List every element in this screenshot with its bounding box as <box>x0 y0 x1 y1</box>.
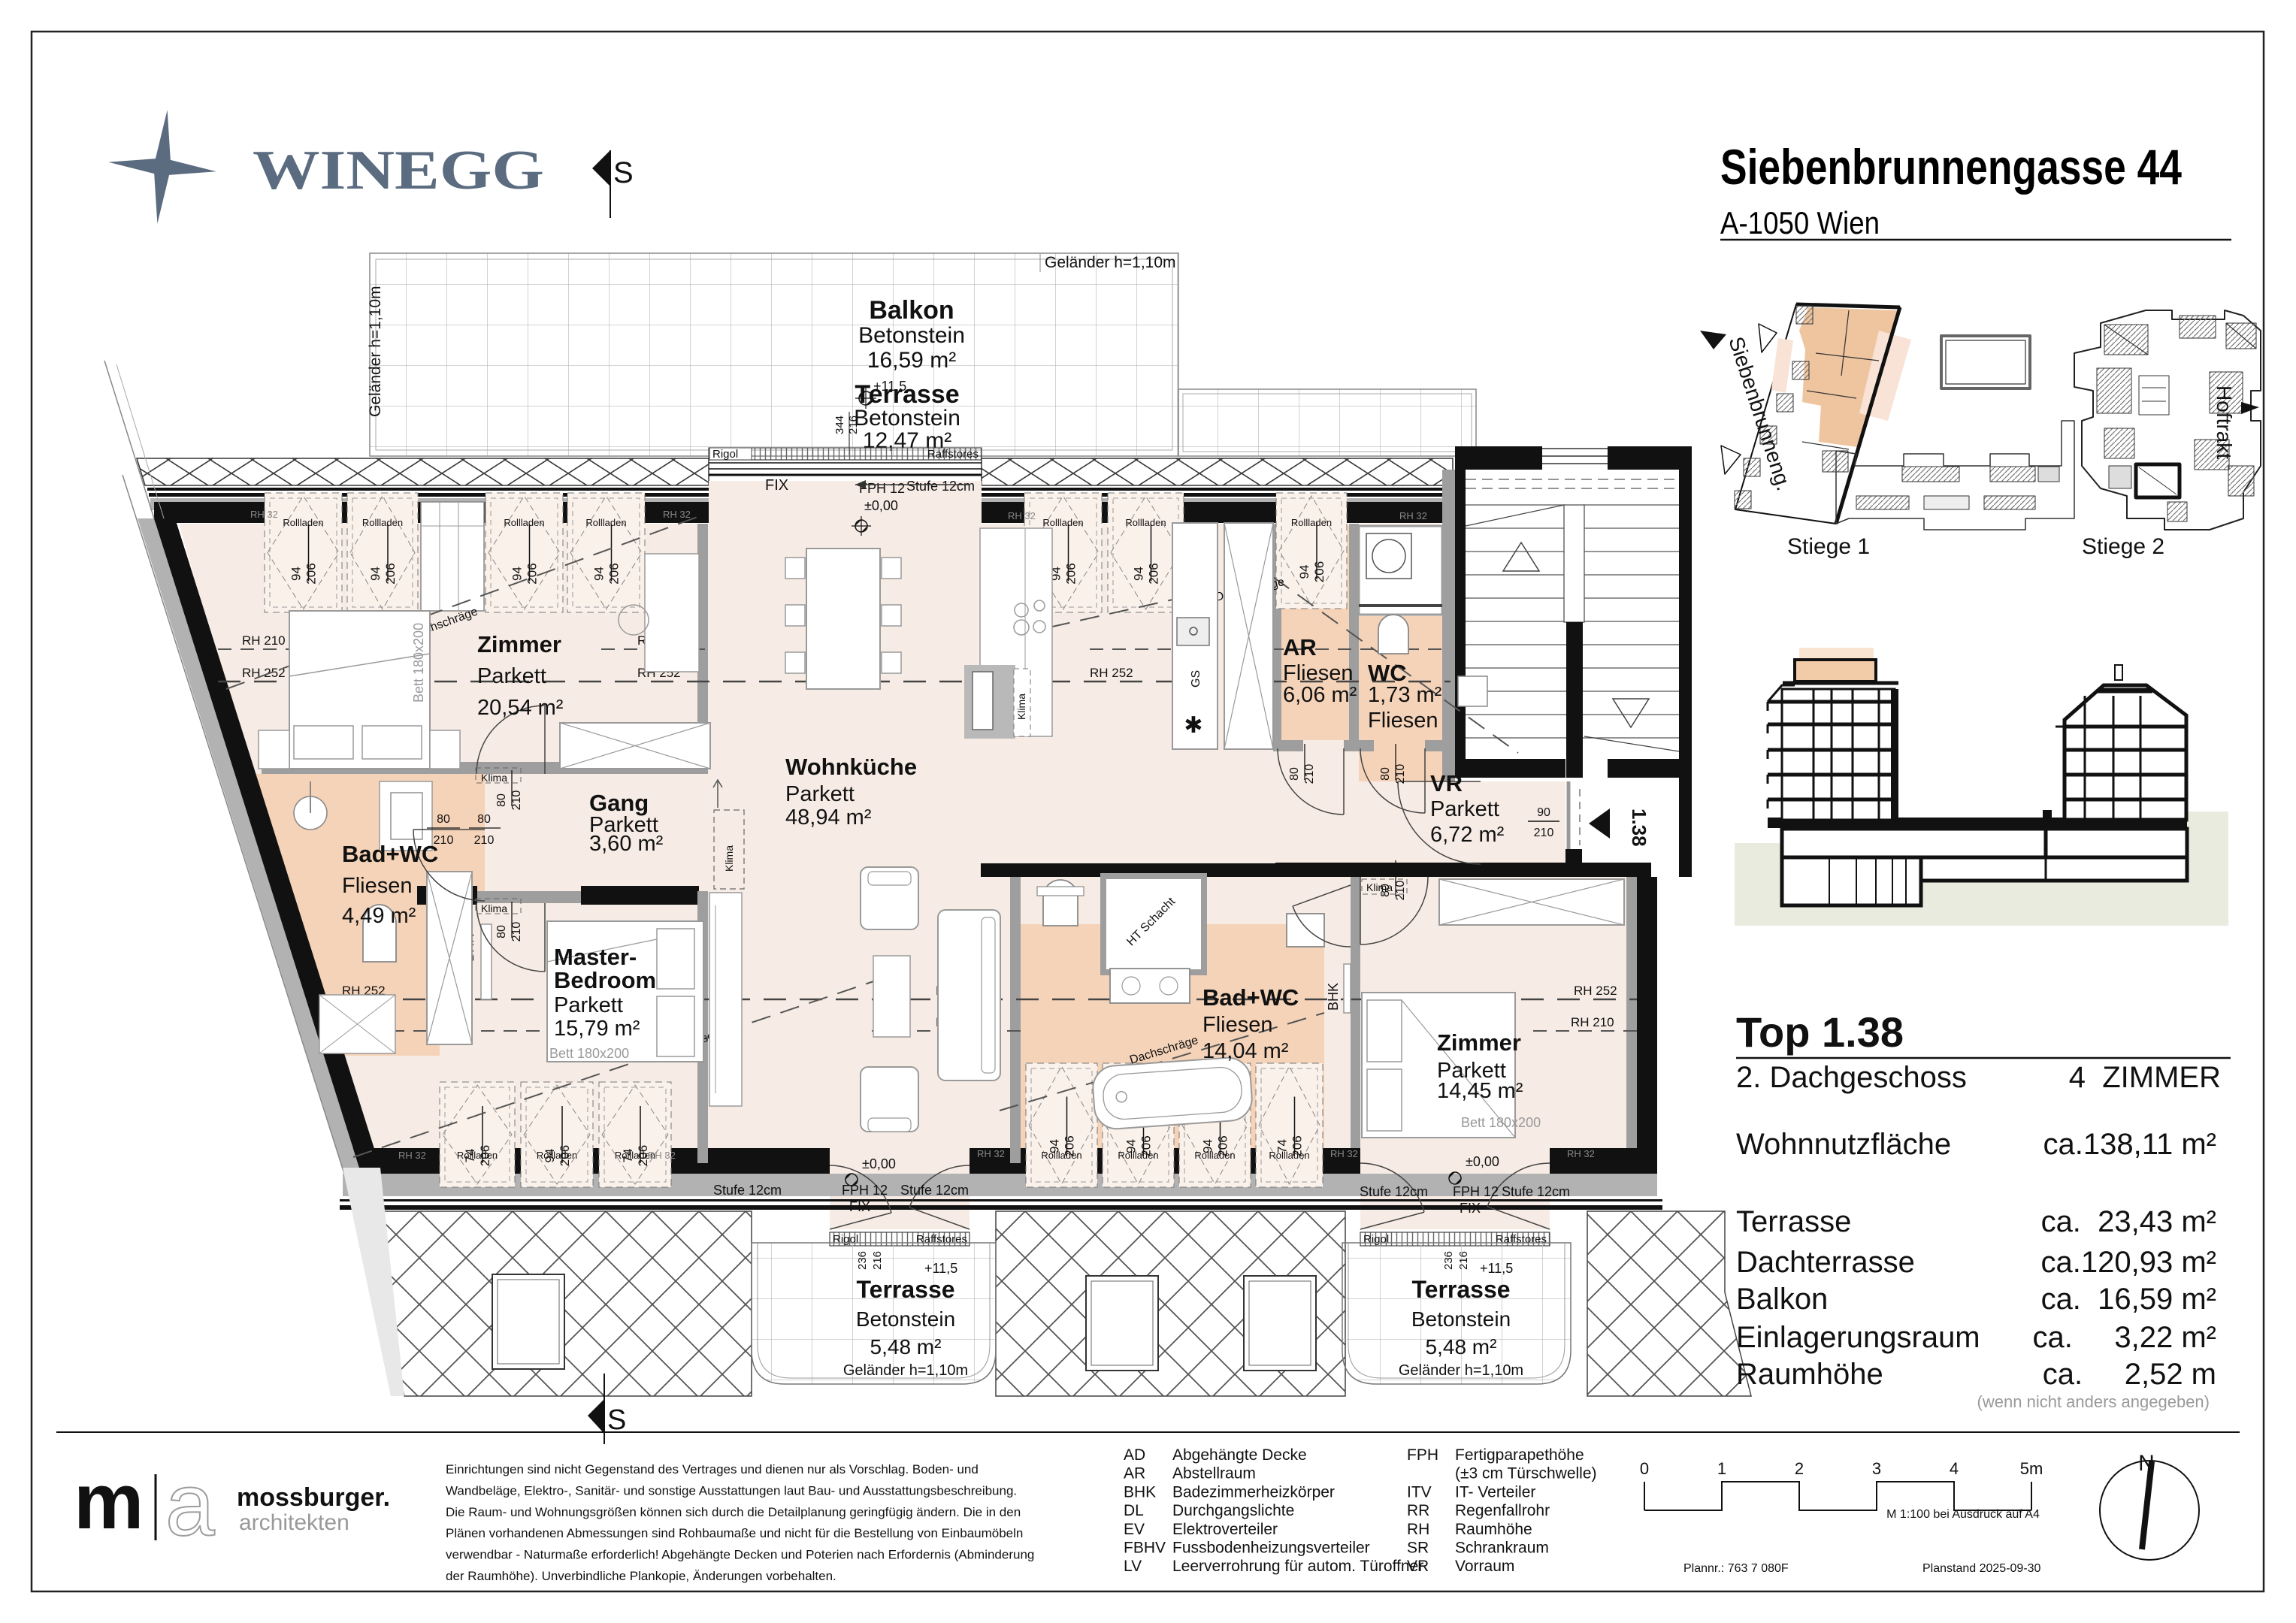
svg-text:Betonstein: Betonstein <box>854 406 960 431</box>
svg-text:Terrasse: Terrasse <box>1736 1205 1851 1238</box>
svg-text:6,72 m²: 6,72 m² <box>1430 823 1505 847</box>
svg-text:206: 206 <box>607 563 622 584</box>
svg-text:Terrasse: Terrasse <box>855 380 959 409</box>
svg-text:Geländer h=1,10m: Geländer h=1,10m <box>367 286 384 417</box>
svg-text:Stufe 12cm: Stufe 12cm <box>713 1183 782 1198</box>
svg-text:Geländer h=1,10m: Geländer h=1,10m <box>843 1362 968 1379</box>
svg-text:80: 80 <box>1379 767 1392 781</box>
svg-text:94: 94 <box>592 567 607 581</box>
svg-text:Raffstores: Raffstores <box>927 448 979 461</box>
svg-text:RH 252: RH 252 <box>1090 666 1133 680</box>
svg-text:SR: SR <box>1407 1540 1429 1557</box>
svg-text:1.38: 1.38 <box>1628 808 1650 847</box>
svg-text:RH: RH <box>1407 1521 1429 1538</box>
svg-text:m: m <box>74 1458 144 1546</box>
svg-text:Rollladen: Rollladen <box>1291 517 1332 528</box>
svg-text:Balkon: Balkon <box>1736 1283 1828 1316</box>
svg-text:✱: ✱ <box>1184 713 1202 738</box>
svg-text:Bett 180x200: Bett 180x200 <box>549 1046 629 1061</box>
svg-text:80: 80 <box>477 813 491 826</box>
svg-text:+11,5: +11,5 <box>1480 1261 1513 1276</box>
svg-text:Leerverrohrung für autom. Türo: Leerverrohrung für autom. Türoffner <box>1172 1558 1423 1575</box>
svg-text:Rollladen: Rollladen <box>283 517 323 528</box>
svg-text:90: 90 <box>1537 806 1550 819</box>
svg-text:ca.138,11 m²: ca.138,11 m² <box>2043 1128 2217 1161</box>
svg-text:Schrankraum: Schrankraum <box>1455 1540 1549 1557</box>
svg-text:2. Dachgeschoss: 2. Dachgeschoss <box>1736 1061 1967 1094</box>
svg-text:5,48 m²: 5,48 m² <box>870 1335 942 1359</box>
svg-text:RH 210: RH 210 <box>1571 1015 1614 1029</box>
svg-text:(±3 cm Türschwelle): (±3 cm Türschwelle) <box>1455 1465 1597 1482</box>
svg-text:Parkett: Parkett <box>554 993 623 1017</box>
svg-text:RH 252: RH 252 <box>1574 984 1617 998</box>
svg-text:Bedroom: Bedroom <box>554 967 656 993</box>
svg-text:3: 3 <box>1872 1459 1881 1478</box>
svg-text:94: 94 <box>368 567 383 581</box>
svg-text:5m: 5m <box>2020 1459 2043 1478</box>
svg-text:FIX: FIX <box>765 477 788 494</box>
svg-text:ca. 2,52 m: ca. 2,52 m <box>2043 1358 2216 1391</box>
svg-text:RH 32: RH 32 <box>977 1148 1005 1159</box>
svg-text:Fliesen: Fliesen <box>342 874 413 898</box>
svg-text:FPH 12: FPH 12 <box>1453 1184 1499 1199</box>
svg-text:ca. 3,22 m²: ca. 3,22 m² <box>2032 1321 2216 1354</box>
svg-text:GS: GS <box>1190 670 1202 688</box>
svg-text:Parkett: Parkett <box>477 664 546 688</box>
svg-text:206: 206 <box>304 563 319 584</box>
svg-text:Betonstein: Betonstein <box>856 1307 955 1331</box>
svg-text:Stufe 12cm: Stufe 12cm <box>1360 1184 1428 1199</box>
svg-text:verwendbar - Naturmaße erforde: verwendbar - Naturmaße erforderlich! Abg… <box>446 1548 1034 1562</box>
svg-text:FBHV: FBHV <box>1124 1540 1166 1557</box>
svg-text:FIX: FIX <box>849 1199 870 1214</box>
svg-text:0: 0 <box>1640 1459 1649 1478</box>
svg-text:5,48 m²: 5,48 m² <box>1426 1335 1497 1359</box>
svg-text:Geländer h=1,10m: Geländer h=1,10m <box>1045 254 1176 271</box>
svg-text:architekten: architekten <box>239 1510 349 1535</box>
svg-text:4 ZIMMER: 4 ZIMMER <box>2069 1061 2221 1094</box>
svg-text:206: 206 <box>1064 563 1078 584</box>
svg-text:206: 206 <box>525 563 540 584</box>
svg-text:VR: VR <box>1407 1558 1429 1575</box>
svg-text:RH 32: RH 32 <box>1567 1148 1595 1159</box>
svg-text:Rollladen: Rollladen <box>457 1150 498 1161</box>
svg-text:AR: AR <box>1283 634 1317 660</box>
svg-text:Einlagerungsraum: Einlagerungsraum <box>1736 1321 1980 1354</box>
svg-text:206: 206 <box>1147 563 1161 584</box>
svg-text:Terrasse: Terrasse <box>1411 1276 1510 1303</box>
svg-text:Fliesen: Fliesen <box>1368 709 1438 733</box>
svg-text:FPH 12: FPH 12 <box>842 1183 888 1198</box>
svg-text:236: 236 <box>1442 1251 1455 1270</box>
svg-text:94: 94 <box>289 567 304 581</box>
svg-text:ca.120,93 m²: ca.120,93 m² <box>2041 1246 2216 1279</box>
svg-text:Rollladen: Rollladen <box>1118 1150 1158 1161</box>
svg-text:Bett 180x200: Bett 180x200 <box>1461 1115 1541 1130</box>
svg-text:Stufe 12cm: Stufe 12cm <box>1502 1184 1570 1199</box>
svg-text:Terrasse: Terrasse <box>856 1276 954 1303</box>
svg-text:Rollladen: Rollladen <box>1194 1150 1235 1161</box>
svg-text:206: 206 <box>1312 561 1326 582</box>
svg-text:der Raumhöhe). Unverbindliche: der Raumhöhe). Unverbindliche Plankopie,… <box>446 1569 836 1583</box>
svg-text:Betonstein: Betonstein <box>858 323 965 348</box>
svg-text:14,04 m²: 14,04 m² <box>1202 1039 1289 1063</box>
svg-text:a: a <box>165 1455 215 1555</box>
svg-text:Fussbodenheizungsverteiler: Fussbodenheizungsverteiler <box>1172 1540 1370 1557</box>
svg-text:ITV: ITV <box>1407 1483 1432 1501</box>
svg-text:Bad+WC: Bad+WC <box>1202 984 1299 1011</box>
svg-text:210: 210 <box>474 834 495 847</box>
svg-text:RH 32: RH 32 <box>648 1150 676 1161</box>
svg-text:4,49 m²: 4,49 m² <box>342 904 416 928</box>
svg-text:15,79 m²: 15,79 m² <box>554 1017 640 1041</box>
svg-text:1: 1 <box>1717 1459 1726 1478</box>
svg-text:80: 80 <box>437 813 450 826</box>
svg-text:Gang: Gang <box>589 790 649 816</box>
svg-text:Abstellraum: Abstellraum <box>1172 1465 1256 1482</box>
svg-text:DL: DL <box>1124 1502 1144 1519</box>
svg-text:Elektroverteiler: Elektroverteiler <box>1172 1521 1278 1538</box>
svg-text:216: 216 <box>871 1251 884 1270</box>
svg-text:4: 4 <box>1950 1459 1959 1478</box>
svg-text:LV: LV <box>1124 1558 1142 1575</box>
svg-text:FPH: FPH <box>1407 1446 1438 1464</box>
svg-text:+11,5: +11,5 <box>924 1261 957 1276</box>
svg-text:Rollladen: Rollladen <box>362 517 403 528</box>
svg-text:210: 210 <box>1534 827 1554 839</box>
svg-text:M 1:100 bei Ausdruck auf A4: M 1:100 bei Ausdruck auf A4 <box>1886 1508 2040 1521</box>
svg-text:Fliesen: Fliesen <box>1283 661 1354 685</box>
svg-text:Fertigparapethöhe: Fertigparapethöhe <box>1455 1446 1584 1464</box>
svg-text:Parkett: Parkett <box>1430 797 1499 821</box>
svg-text:Rollladen: Rollladen <box>1125 517 1166 528</box>
svg-text:80: 80 <box>495 925 508 938</box>
svg-text:Abgehängte Decke: Abgehängte Decke <box>1172 1446 1307 1464</box>
svg-text:FPH 12: FPH 12 <box>859 481 905 496</box>
svg-text:RH 32: RH 32 <box>663 509 691 520</box>
svg-text:Klima: Klima <box>1366 881 1393 893</box>
svg-text:1,73 m²: 1,73 m² <box>1368 683 1442 707</box>
svg-text:ca. 16,59 m²: ca. 16,59 m² <box>2041 1283 2216 1316</box>
svg-text:Bad+WC: Bad+WC <box>342 841 438 867</box>
svg-text:Fliesen: Fliesen <box>1202 1013 1273 1037</box>
svg-text:Bett 180x200: Bett 180x200 <box>411 623 426 703</box>
svg-text:48,94 m²: 48,94 m² <box>785 805 872 830</box>
svg-text:Stiege 1: Stiege 1 <box>1787 534 1870 559</box>
svg-text:Stufe 12cm: Stufe 12cm <box>906 479 975 494</box>
svg-text:Rollladen: Rollladen <box>1269 1150 1309 1161</box>
svg-text:Rollladen: Rollladen <box>1041 1150 1081 1161</box>
svg-text:Klima: Klima <box>481 772 507 784</box>
svg-text:Stufe 12cm: Stufe 12cm <box>900 1183 969 1198</box>
svg-text:Wandbeläge, Elektro-, Sanitär-: Wandbeläge, Elektro-, Sanitär- und sonst… <box>446 1483 1017 1498</box>
svg-text:Planstand 2025-09-30: Planstand 2025-09-30 <box>1922 1562 2041 1575</box>
svg-text:IT- Verteiler: IT- Verteiler <box>1455 1483 1535 1501</box>
svg-text:Zimmer: Zimmer <box>1437 1029 1521 1056</box>
svg-text:WINEGG: WINEGG <box>253 140 544 201</box>
svg-text:(wenn nicht anders angegeben): (wenn nicht anders angegeben) <box>1977 1392 2210 1411</box>
svg-text:AR: AR <box>1124 1465 1145 1482</box>
svg-text:RH 32: RH 32 <box>250 509 278 520</box>
svg-text:80: 80 <box>1288 767 1301 781</box>
svg-text:RH 32: RH 32 <box>398 1150 426 1161</box>
svg-text:3,60 m²: 3,60 m² <box>589 832 664 856</box>
svg-text:Zimmer: Zimmer <box>477 631 561 657</box>
svg-text:Siebenbrunnengasse 44: Siebenbrunnengasse 44 <box>1720 139 2182 195</box>
svg-text:±0,00: ±0,00 <box>862 1156 896 1171</box>
svg-text:+11,5: +11,5 <box>873 379 906 394</box>
svg-text:Wohnküche: Wohnküche <box>785 754 917 780</box>
svg-text:Wohnnutzfläche: Wohnnutzfläche <box>1736 1128 1951 1161</box>
svg-text:Die Raum- und Wohnungsgrößen k: Die Raum- und Wohnungsgrößen können sich… <box>446 1505 1021 1519</box>
svg-text:Klima: Klima <box>481 902 507 914</box>
svg-text:Klima: Klima <box>1015 694 1027 720</box>
svg-text:AD: AD <box>1124 1446 1145 1464</box>
svg-text:Klima: Klima <box>723 845 735 872</box>
svg-text:Rigol: Rigol <box>712 448 738 461</box>
svg-text:Rollladen: Rollladen <box>1042 517 1083 528</box>
svg-text:14,45 m²: 14,45 m² <box>1437 1079 1523 1103</box>
svg-text:Dachterrasse: Dachterrasse <box>1736 1246 1915 1279</box>
svg-text:WC: WC <box>1368 660 1407 686</box>
svg-text:Top 1.38: Top 1.38 <box>1736 1008 1904 1056</box>
svg-text:80: 80 <box>495 793 508 807</box>
svg-text:Durchgangslichte: Durchgangslichte <box>1172 1502 1294 1519</box>
svg-text:Balkon: Balkon <box>869 296 954 325</box>
svg-text:RH 252: RH 252 <box>242 666 286 680</box>
svg-text:Badezimmerheizkörper: Badezimmerheizkörper <box>1172 1483 1335 1501</box>
svg-text:206: 206 <box>383 563 398 584</box>
svg-text:Plänen vorhandenen Abmessungen: Plänen vorhandenen Abmessungen sind Rohb… <box>446 1526 1023 1540</box>
svg-text:S: S <box>607 1404 626 1436</box>
svg-text:94: 94 <box>1132 567 1146 581</box>
svg-text:Parkett: Parkett <box>785 782 855 806</box>
svg-text:94: 94 <box>510 567 525 581</box>
svg-text:Stiege 2: Stiege 2 <box>2082 534 2164 559</box>
svg-text:VR: VR <box>1430 770 1463 796</box>
svg-text:S: S <box>613 156 634 189</box>
svg-text:RH 32: RH 32 <box>1008 510 1036 521</box>
svg-text:Rollladen: Rollladen <box>504 517 544 528</box>
svg-text:Einrichtungen sind nicht Gegen: Einrichtungen sind nicht Gegenstand des … <box>446 1462 979 1476</box>
svg-text:Master-: Master- <box>554 944 637 970</box>
svg-text:±0,00: ±0,00 <box>1466 1154 1499 1169</box>
svg-text:BHK: BHK <box>1124 1483 1156 1501</box>
svg-text:216: 216 <box>1457 1251 1470 1270</box>
svg-text:A-1050 Wien: A-1050 Wien <box>1720 205 1880 240</box>
svg-text:Rollladen: Rollladen <box>585 517 626 528</box>
svg-text:ca. 23,43 m²: ca. 23,43 m² <box>2041 1205 2216 1238</box>
svg-text:RH 32: RH 32 <box>1330 1148 1358 1159</box>
svg-text:±0,00: ±0,00 <box>864 498 898 513</box>
svg-text:Betonstein: Betonstein <box>1411 1307 1511 1331</box>
svg-text:Rollladen: Rollladen <box>537 1150 577 1161</box>
svg-text:RH 32: RH 32 <box>1399 510 1427 521</box>
svg-text:RH 210: RH 210 <box>242 633 286 648</box>
svg-text:Vorraum: Vorraum <box>1455 1558 1514 1575</box>
svg-text:236: 236 <box>856 1251 869 1270</box>
svg-text:2: 2 <box>1795 1459 1804 1478</box>
svg-text:mossburger.: mossburger. <box>237 1483 390 1512</box>
svg-text:344: 344 <box>833 416 846 434</box>
svg-text:EV: EV <box>1124 1521 1145 1538</box>
svg-text:Geländer h=1,10m: Geländer h=1,10m <box>1399 1362 1523 1379</box>
svg-text:BHK: BHK <box>1326 983 1341 1011</box>
svg-text:FIX: FIX <box>1460 1201 1481 1216</box>
svg-text:20,54 m²: 20,54 m² <box>477 696 564 720</box>
svg-text:Raumhöhe: Raumhöhe <box>1455 1521 1532 1538</box>
svg-text:RR: RR <box>1407 1502 1429 1519</box>
svg-text:94: 94 <box>1297 565 1311 579</box>
svg-text:Hoftrakt: Hoftrakt <box>2213 385 2236 459</box>
svg-text:Regenfallrohr: Regenfallrohr <box>1455 1502 1550 1519</box>
svg-text:16,59 m²: 16,59 m² <box>867 348 956 373</box>
svg-text:Plannr.: 763 7 080F: Plannr.: 763 7 080F <box>1683 1562 1789 1575</box>
svg-text:6,06 m²: 6,06 m² <box>1283 683 1357 707</box>
svg-text:Raumhöhe: Raumhöhe <box>1736 1358 1883 1391</box>
